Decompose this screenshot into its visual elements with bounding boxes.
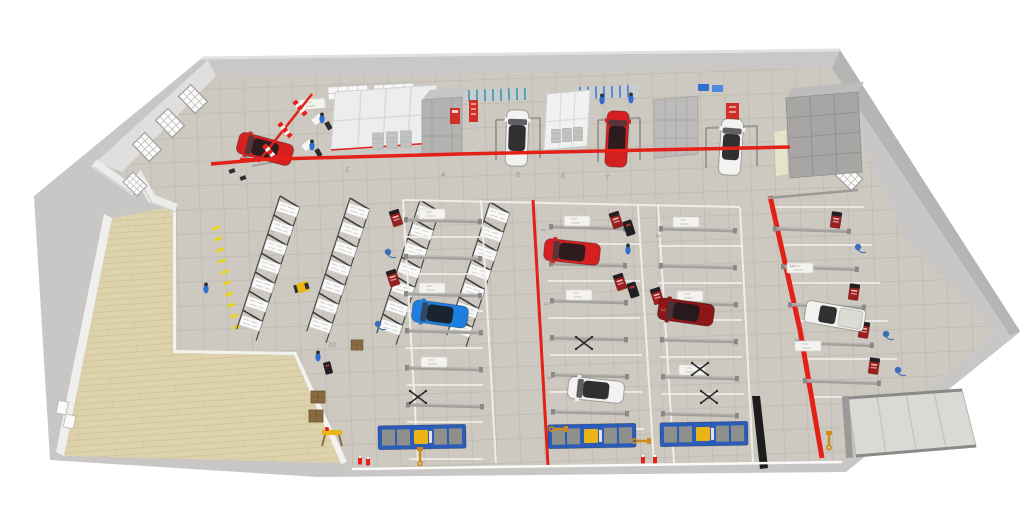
worker-figure	[203, 283, 208, 294]
car-white-suv	[503, 110, 531, 167]
bay-number: 6	[561, 173, 565, 180]
alignment-platform	[378, 424, 466, 450]
alignment-platform	[548, 423, 636, 449]
viewport-3d-workshop[interactable]: 1 4 5 6 7 10 3 3 3 3 3 3 3	[0, 0, 1024, 512]
worker-figure	[628, 93, 633, 104]
plant-room	[774, 82, 864, 178]
car-red-suv	[603, 110, 632, 167]
worker-figure	[319, 113, 324, 124]
bay-number: 4	[441, 172, 445, 179]
paint-booth-2	[544, 90, 590, 158]
paint-booth-1	[331, 85, 437, 159]
aisle-number: 10	[328, 342, 336, 349]
edge-platform	[842, 390, 976, 458]
worker-figure	[599, 94, 604, 105]
bay-number: 5	[516, 172, 520, 179]
worker-figure	[315, 351, 320, 362]
worker-figure	[309, 140, 314, 151]
worker-figure	[625, 244, 630, 255]
alignment-platform	[660, 421, 748, 447]
bay-number: 1	[345, 167, 349, 174]
render-canvas[interactable]: 1 4 5 6 7 10 3 3 3 3 3 3 3	[0, 0, 1024, 512]
